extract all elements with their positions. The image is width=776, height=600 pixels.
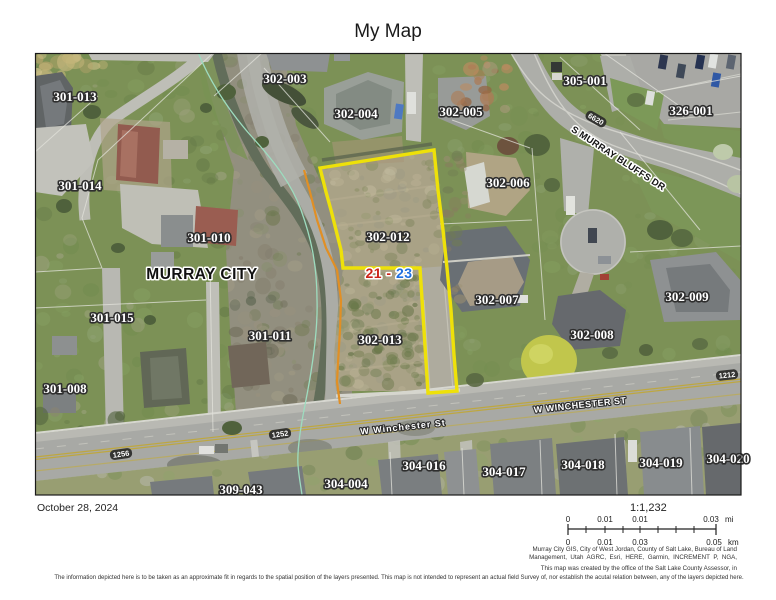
svg-text:21 - 23: 21 - 23 <box>365 265 412 281</box>
svg-text:302-007: 302-007 <box>475 292 519 307</box>
svg-text:301-014: 301-014 <box>58 178 102 193</box>
svg-text:km: km <box>728 538 739 546</box>
svg-text:304-019: 304-019 <box>639 455 683 470</box>
svg-text:mi: mi <box>725 515 734 524</box>
svg-text:0.05: 0.05 <box>706 538 722 546</box>
svg-text:305-001: 305-001 <box>563 73 606 88</box>
svg-text:301-015: 301-015 <box>90 310 134 325</box>
svg-text:304-016: 304-016 <box>402 458 446 473</box>
svg-text:302-005: 302-005 <box>439 104 483 119</box>
svg-text:0.01: 0.01 <box>597 515 613 524</box>
svg-text:0.03: 0.03 <box>703 515 719 524</box>
svg-text:302-009: 302-009 <box>665 289 709 304</box>
svg-text:0: 0 <box>566 538 571 546</box>
svg-text:1212: 1212 <box>718 370 736 381</box>
svg-text:0.03: 0.03 <box>632 538 648 546</box>
svg-text:302-012: 302-012 <box>366 229 409 244</box>
svg-text:302-013: 302-013 <box>358 332 402 347</box>
svg-text:304-020: 304-020 <box>706 451 749 466</box>
svg-text:302-004: 302-004 <box>334 106 378 121</box>
svg-text:0.01: 0.01 <box>597 538 613 546</box>
svg-text:301-011: 301-011 <box>249 328 292 343</box>
svg-text:304-018: 304-018 <box>561 457 605 472</box>
svg-text:304-017: 304-017 <box>482 464 526 479</box>
svg-text:301-013: 301-013 <box>53 89 97 104</box>
svg-text:302-006: 302-006 <box>486 175 530 190</box>
svg-text:301-008: 301-008 <box>43 381 87 396</box>
svg-text:0.01: 0.01 <box>632 515 648 524</box>
svg-text:0: 0 <box>566 515 571 524</box>
svg-text:301-010: 301-010 <box>187 230 230 245</box>
svg-text:304-004: 304-004 <box>324 476 368 491</box>
svg-text:302-008: 302-008 <box>570 327 614 342</box>
svg-text:326-001: 326-001 <box>669 103 712 118</box>
svg-text:302-003: 302-003 <box>263 71 307 86</box>
svg-text:MURRAY CITY: MURRAY CITY <box>146 266 258 283</box>
